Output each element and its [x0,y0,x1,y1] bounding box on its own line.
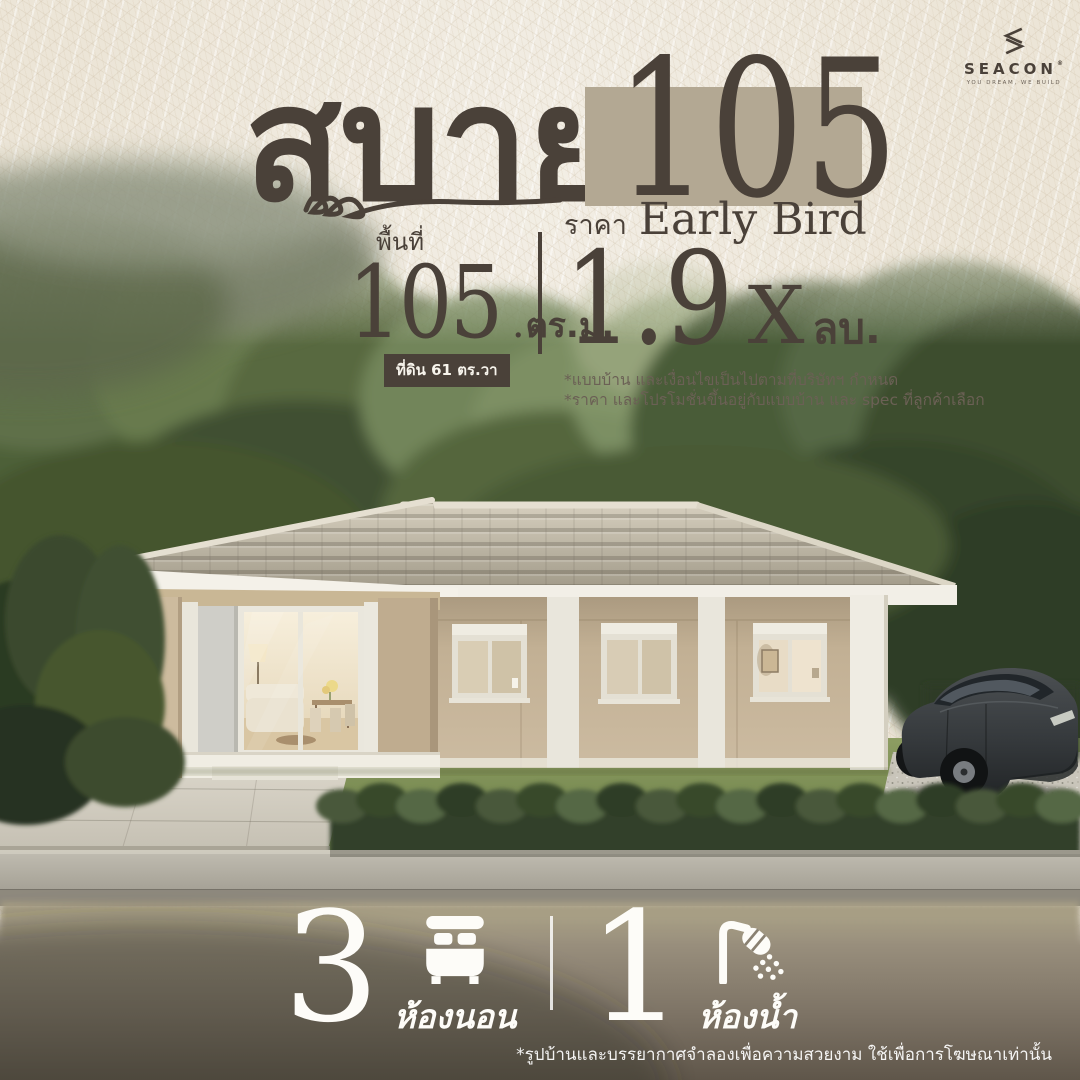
front-hedge [316,783,1080,856]
bathrooms-label: ห้องน้ำ [698,990,797,1043]
logo-name: SEACON® [964,60,1064,78]
price-unit: ลบ. [813,296,881,362]
feature-row: 3 ห้องนอน 1 [0,906,1080,1043]
window-middle [598,623,680,704]
title-number-box: 105 [585,87,862,206]
bathrooms-feature: 1 ห้องน้ำ [587,906,797,1043]
logo-tagline: YOU DREAM, WE BUILD [964,80,1064,86]
porch [150,589,440,780]
bedrooms-label: ห้องนอน [394,990,517,1043]
price-value-suffix: X [748,269,805,362]
porch-glass-door [238,606,364,756]
window-right [750,623,830,702]
area-value: 105 [348,255,501,350]
feature-divider [550,916,553,1010]
bedrooms-count: 3 [283,906,380,1031]
seacon-logo: SEACON® YOU DREAM, WE BUILD [964,26,1064,86]
price-disclaimer-line: *ราคา และโปรโมชั่นขึ้นอยู่กับแบบบ้าน และ… [564,390,985,410]
sliding-door-panel [198,606,238,772]
bathrooms-count: 1 [587,906,684,1031]
bedrooms-feature: 3 ห้องนอน [283,906,516,1043]
bed-icon [411,916,499,984]
window-left [449,624,530,703]
footpath [0,850,1080,906]
price-disclaimers: *แบบบ้าน และเงื่อนไขเป็นไปตามที่บริษัทฯ … [564,370,985,410]
squiggle-underline-icon [298,176,570,224]
spec-divider [538,232,542,354]
corner-column [850,595,888,770]
price-spec: ราคา Early Bird 1.9Xลบ. *แบบบ้าน และเงื่… [564,194,985,410]
seacon-s-icon [1001,26,1027,56]
footer-disclaimer: *รูปบ้านและบรรยากาศจำลองเพื่อความสวยงาม … [516,1041,1052,1068]
wall-pilaster [547,597,579,768]
shower-icon [712,916,784,984]
area-spec: พื้นที่ 105.ตร.ม. ที่ดิน 61 ตร.วา [348,222,528,387]
registered-mark: ® [1057,60,1067,67]
poster: สบาย 105 SEACON® YOU DREAM, WE BUILD พื้… [0,0,1080,1080]
wall-pilaster [698,597,725,768]
price-value: 1.9 [564,236,732,364]
area-separator: . [512,301,525,347]
